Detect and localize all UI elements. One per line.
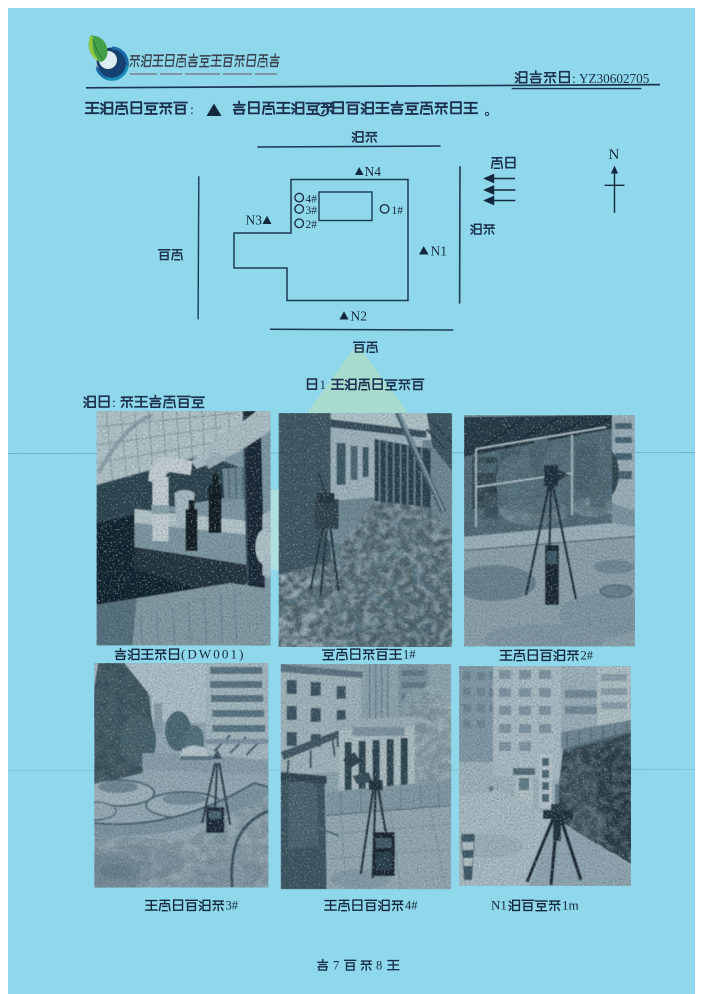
svg-text:N2: N2 bbox=[351, 309, 368, 324]
svg-text:1#: 1# bbox=[403, 648, 416, 662]
svg-text:4#: 4# bbox=[306, 194, 318, 206]
svg-text:2#: 2# bbox=[306, 219, 318, 231]
svg-text:N1: N1 bbox=[491, 898, 507, 913]
svg-text:4#: 4# bbox=[405, 899, 418, 913]
svg-text:N4: N4 bbox=[365, 164, 382, 179]
svg-text:8: 8 bbox=[376, 959, 382, 973]
svg-text:2#: 2# bbox=[581, 649, 594, 663]
svg-text::: : bbox=[190, 103, 194, 118]
svg-text:1: 1 bbox=[320, 377, 327, 392]
svg-text:: YZ30602705: : YZ30602705 bbox=[572, 71, 650, 86]
svg-text::: : bbox=[112, 395, 116, 410]
svg-text:N: N bbox=[609, 147, 620, 163]
svg-text:1#: 1# bbox=[392, 205, 404, 217]
svg-text:N1: N1 bbox=[431, 244, 448, 259]
svg-text:(DW001): (DW001) bbox=[181, 647, 246, 662]
svg-text:N3: N3 bbox=[246, 213, 263, 228]
svg-text:1m: 1m bbox=[562, 898, 579, 913]
svg-text:3#: 3# bbox=[226, 899, 239, 913]
svg-text:7: 7 bbox=[333, 959, 339, 973]
svg-text:3#: 3# bbox=[306, 205, 318, 217]
